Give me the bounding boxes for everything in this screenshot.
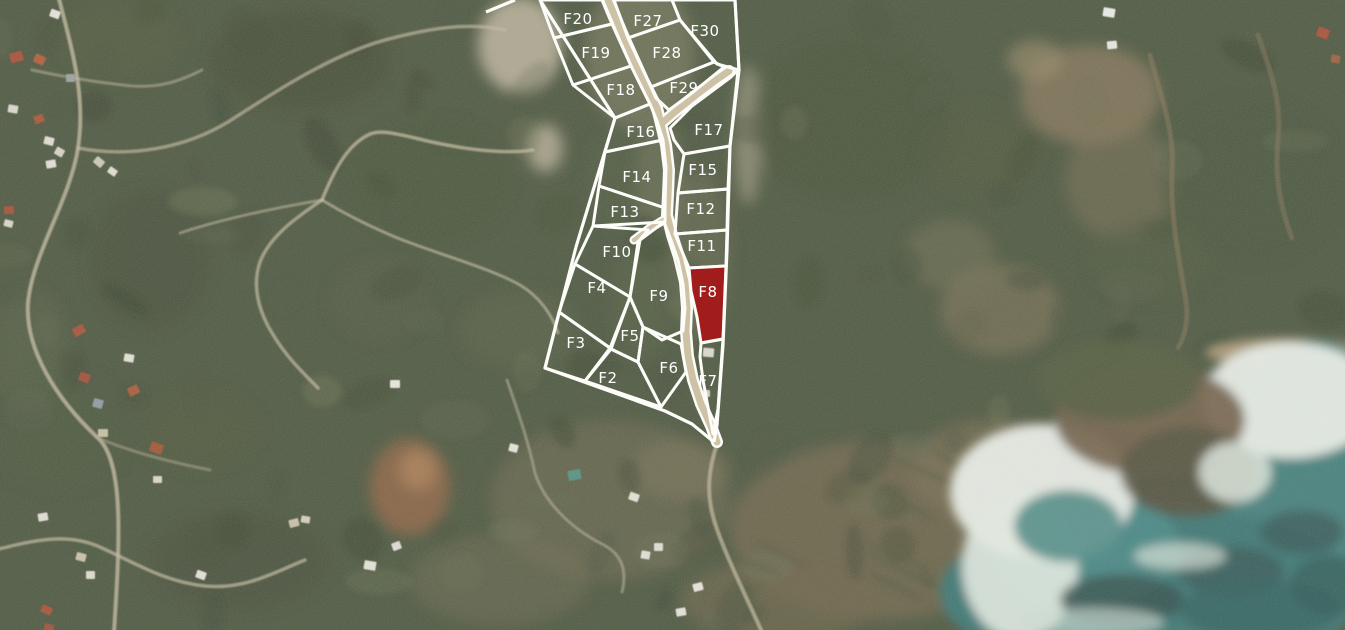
plot-label-F8: F8 — [698, 283, 717, 301]
plot-label-F7: F7 — [698, 372, 717, 390]
plot-label-F2: F2 — [598, 369, 617, 387]
plot-label-F20: F20 — [563, 10, 592, 28]
plot-label-F14: F14 — [622, 168, 651, 186]
plot-label-F19: F19 — [581, 44, 610, 62]
plot-label-F6: F6 — [659, 359, 678, 377]
plot-label-F3: F3 — [566, 334, 585, 352]
plot-label-F29: F29 — [669, 79, 698, 97]
plot-label-F5: F5 — [620, 327, 639, 345]
plot-label-F10: F10 — [602, 243, 631, 261]
plot-label-F15: F15 — [688, 161, 717, 179]
plot-label-F18: F18 — [606, 81, 635, 99]
satellite-map: F20F27F30F19F28F29F18F17F16F15F14F13F12F… — [0, 0, 1345, 630]
plot-label-F30: F30 — [690, 22, 719, 40]
plot-label-F13: F13 — [610, 203, 639, 221]
plot-label-F4: F4 — [587, 279, 606, 297]
plot-label-F17: F17 — [694, 121, 723, 139]
plot-label-F27: F27 — [633, 12, 662, 30]
plot-label-F12: F12 — [686, 200, 715, 218]
plot-label-F16: F16 — [626, 123, 655, 141]
map-viewport: F20F27F30F19F28F29F18F17F16F15F14F13F12F… — [0, 0, 1345, 630]
plot-label-F9: F9 — [649, 287, 668, 305]
plot-label-F28: F28 — [652, 44, 681, 62]
plot-label-F11: F11 — [687, 237, 716, 255]
